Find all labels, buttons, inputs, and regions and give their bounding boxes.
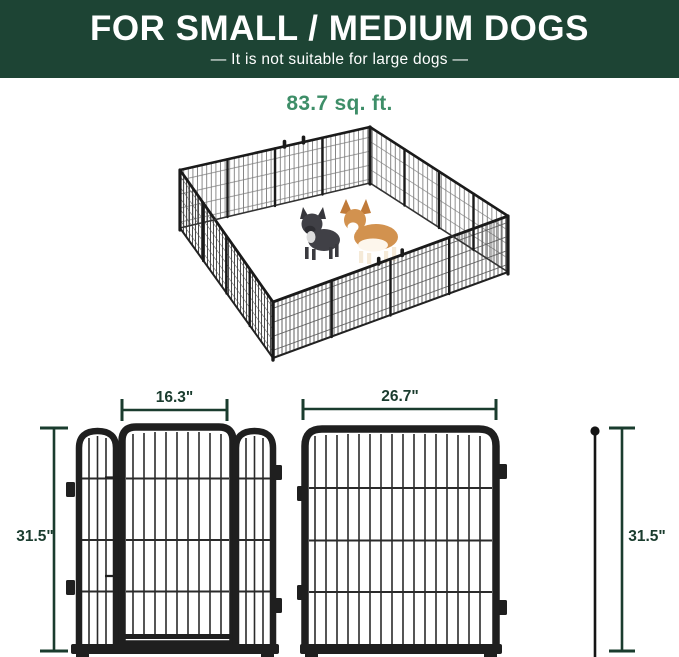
ground-stake — [590, 426, 599, 657]
header-banner: FOR SMALL / MEDIUM DOGS — It is not suit… — [0, 0, 679, 78]
playpen-illustration — [140, 120, 540, 372]
banner-title: FOR SMALL / MEDIUM DOGS — [90, 11, 589, 48]
product-infographic: FOR SMALL / MEDIUM DOGS — It is not suit… — [0, 0, 679, 657]
right-height-label: 31.5" — [628, 528, 666, 545]
left-height-label: 31.5" — [16, 528, 54, 545]
area-size-label: 83.7 sq. ft. — [0, 92, 679, 116]
panel-width-label: 26.7" — [381, 388, 419, 405]
panel-frame — [305, 429, 496, 648]
panel-base-bar — [300, 644, 502, 654]
gate-base-bar — [71, 644, 279, 654]
door-width-label: 16.3" — [156, 389, 194, 406]
banner-subtitle: — It is not suitable for large dogs — — [211, 51, 469, 69]
regular-panel-diagram — [297, 429, 507, 657]
gate-panel-diagram — [66, 427, 282, 657]
dimension-diagram: 31.5" 16.3" 26.7" 31.5" — [0, 380, 679, 657]
